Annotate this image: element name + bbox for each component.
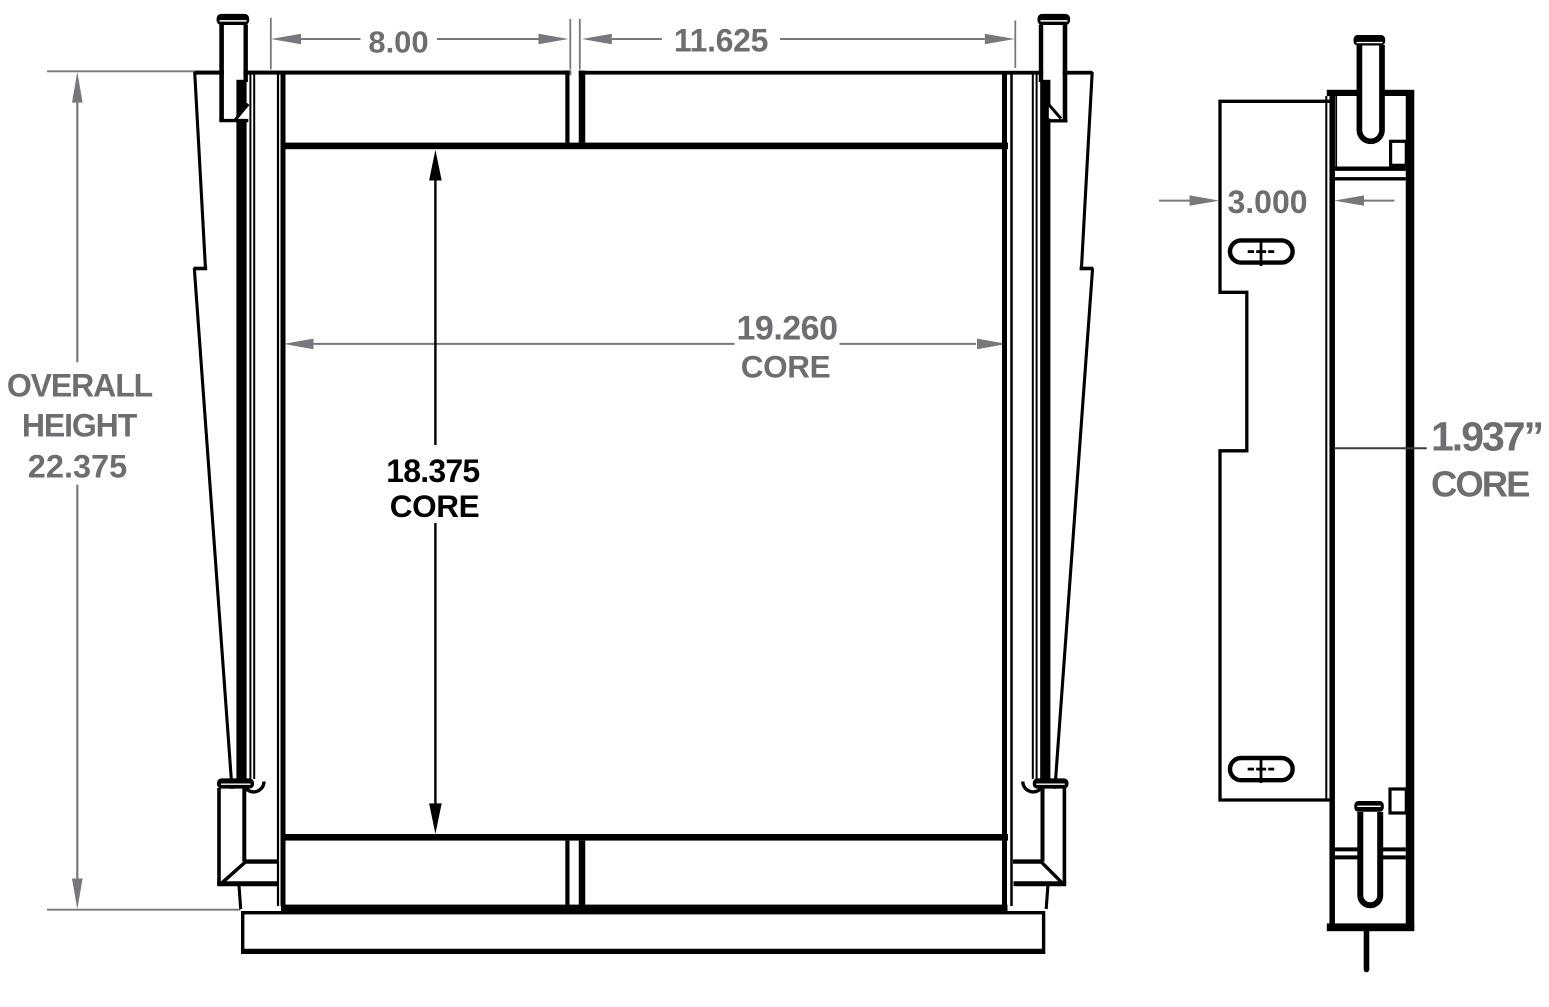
svg-text:18.375: 18.375 — [386, 453, 479, 489]
svg-text:HEIGHT: HEIGHT — [22, 408, 138, 444]
svg-text:CORE: CORE — [741, 348, 830, 384]
svg-text:OVERALL: OVERALL — [7, 367, 153, 403]
svg-text:19.260: 19.260 — [737, 310, 838, 348]
svg-text:CORE: CORE — [390, 488, 479, 524]
svg-text:11.625: 11.625 — [674, 23, 768, 59]
svg-text:3.000: 3.000 — [1227, 184, 1307, 220]
svg-text:1.937”: 1.937” — [1431, 413, 1542, 459]
svg-text:CORE: CORE — [1431, 464, 1529, 505]
svg-text:22.375: 22.375 — [28, 449, 127, 485]
svg-text:8.00: 8.00 — [368, 25, 428, 60]
